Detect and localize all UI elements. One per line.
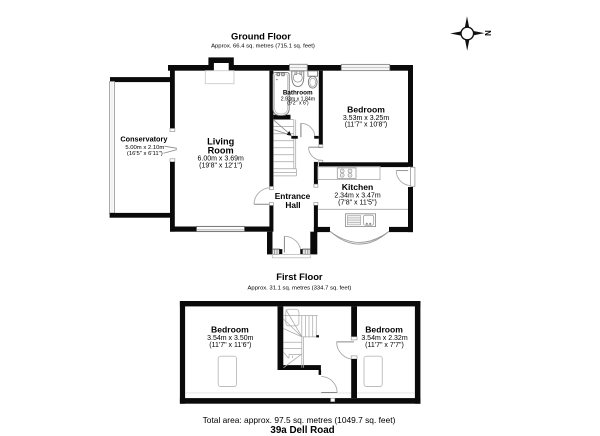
svg-text:Conservatory: Conservatory <box>120 134 168 143</box>
svg-text:(19'8" x 12'1"): (19'8" x 12'1") <box>199 163 242 170</box>
svg-text:(11'7" x 10'8"): (11'7" x 10'8") <box>345 122 388 129</box>
svg-text:3.54m x 2.32m: 3.54m x 2.32m <box>361 335 407 342</box>
svg-text:Kitchen: Kitchen <box>342 182 374 192</box>
svg-text:Hall: Hall <box>285 200 300 210</box>
svg-text:39a Dell Road: 39a Dell Road <box>270 425 334 436</box>
svg-text:Room: Room <box>208 145 234 155</box>
svg-text:(7'8" x 11'5"): (7'8" x 11'5") <box>338 199 377 206</box>
svg-text:Approx. 66.4 sq. metres (715.1: Approx. 66.4 sq. metres (715.1 sq. feet) <box>211 43 315 49</box>
svg-text:(11'7" x 7'7"): (11'7" x 7'7") <box>365 342 404 349</box>
svg-text:3.54m x 3.50m: 3.54m x 3.50m <box>207 335 253 342</box>
svg-text:Bedroom: Bedroom <box>365 324 403 334</box>
svg-text:(9'2" x 6'): (9'2" x 6') <box>287 101 309 107</box>
svg-text:Approx. 31.1 sq. metres (334.7: Approx. 31.1 sq. metres (334.7 sq. feet) <box>248 285 352 291</box>
svg-text:N: N <box>483 30 492 36</box>
svg-text:Ground Floor: Ground Floor <box>231 31 291 42</box>
svg-text:(16'5" x 6'11"): (16'5" x 6'11") <box>127 151 163 157</box>
svg-text:(11'7" x 11'6"): (11'7" x 11'6") <box>209 342 251 349</box>
svg-text:First Floor: First Floor <box>276 271 323 282</box>
svg-text:Bedroom: Bedroom <box>211 324 249 334</box>
svg-text:6.00m x 3.69m: 6.00m x 3.69m <box>198 156 244 163</box>
svg-text:Total area: approx. 97.5 sq. m: Total area: approx. 97.5 sq. metres (104… <box>203 415 396 425</box>
svg-text:Bedroom: Bedroom <box>347 104 385 114</box>
